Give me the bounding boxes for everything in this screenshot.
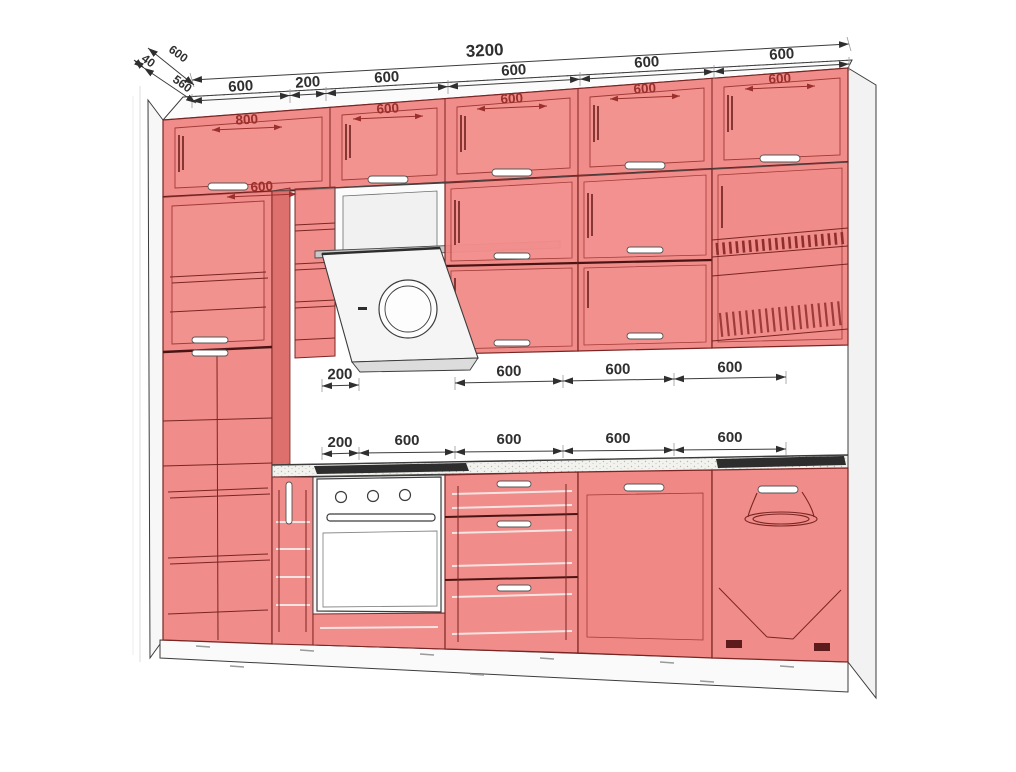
segment-dim-600b: 600 xyxy=(374,68,400,86)
base-row-dimensions: 200 600 600 600 600 xyxy=(322,429,786,460)
left-side-panel xyxy=(148,100,163,658)
depth-total-label: 600 xyxy=(166,42,191,65)
total-width-label: 3200 xyxy=(465,40,504,61)
segment-dim-600a: 600 xyxy=(228,77,254,95)
drawer-unit-600 xyxy=(445,472,578,653)
base-door-cabinet-600 xyxy=(578,470,712,658)
upper-cab-dim-600b: 600 xyxy=(500,90,523,106)
oven-knob-2 xyxy=(368,491,379,502)
hood-glass-ring xyxy=(379,280,437,338)
tall-cabinet-side-face xyxy=(272,188,290,466)
right-side-panel xyxy=(848,68,876,698)
sink-base-cabinet-600 xyxy=(712,468,848,662)
wall-cabinet-600-b xyxy=(578,169,712,351)
upper-cab-dim-800: 800 xyxy=(235,111,258,127)
base-pullout-200 xyxy=(272,477,313,645)
depth-dimensions: 600 40 560 xyxy=(134,42,196,103)
tall-cabinet-upper-handle xyxy=(192,337,228,343)
segment-dim-600c: 600 xyxy=(501,61,527,79)
segment-dim-600e: 600 xyxy=(769,45,795,63)
kitchen-elevation-drawing: 800 600 600 600 600 600 xyxy=(0,0,1016,772)
oven-handle xyxy=(327,514,435,521)
sink-cabinet-foot-right xyxy=(814,643,830,651)
base-row-dim-600c: 600 xyxy=(605,430,630,447)
upper-cab-dim-600a: 600 xyxy=(376,100,399,116)
oven xyxy=(317,477,441,612)
upper-cab-dim-600d: 600 xyxy=(768,70,791,86)
base-row-dim-200: 200 xyxy=(327,434,352,451)
base-row-dim-600d: 600 xyxy=(717,429,742,446)
base-row-dim-600a: 600 xyxy=(394,432,419,449)
oven-knob-1 xyxy=(336,492,347,503)
hood-switch xyxy=(358,307,367,310)
oven-housing xyxy=(313,475,445,649)
base-row-dim-600b: 600 xyxy=(496,431,521,448)
background-wall-lines xyxy=(133,86,140,662)
wall-row-dim-600c: 600 xyxy=(717,359,742,376)
tall-cabinet-lower-handle xyxy=(192,350,228,356)
base-cabinet-row xyxy=(272,468,848,662)
dish-drainer-cabinet xyxy=(712,162,848,348)
segment-dim-200: 200 xyxy=(295,73,321,91)
sink-cabinet-foot-left xyxy=(726,640,742,648)
tall-cabinet-width-label: 600 xyxy=(250,178,273,194)
hood-wall-cabinet xyxy=(335,183,445,257)
kitchen-design-canvas: 800 600 600 600 600 600 xyxy=(0,0,1016,772)
wall-row-dim-600a: 600 xyxy=(496,363,521,380)
oven-knob-3 xyxy=(400,490,411,501)
oven-bottom-drawer xyxy=(313,613,445,649)
pullout-handle xyxy=(286,482,292,524)
upper-cab-dim-600c: 600 xyxy=(633,80,656,96)
segment-dim-600d: 600 xyxy=(634,53,660,71)
wall-row-dim-600b: 600 xyxy=(605,361,630,378)
wall-row-dim-200: 200 xyxy=(327,366,352,383)
wall-dimension-rows: 200 600 600 600 200 600 600 600 600 xyxy=(322,359,786,460)
